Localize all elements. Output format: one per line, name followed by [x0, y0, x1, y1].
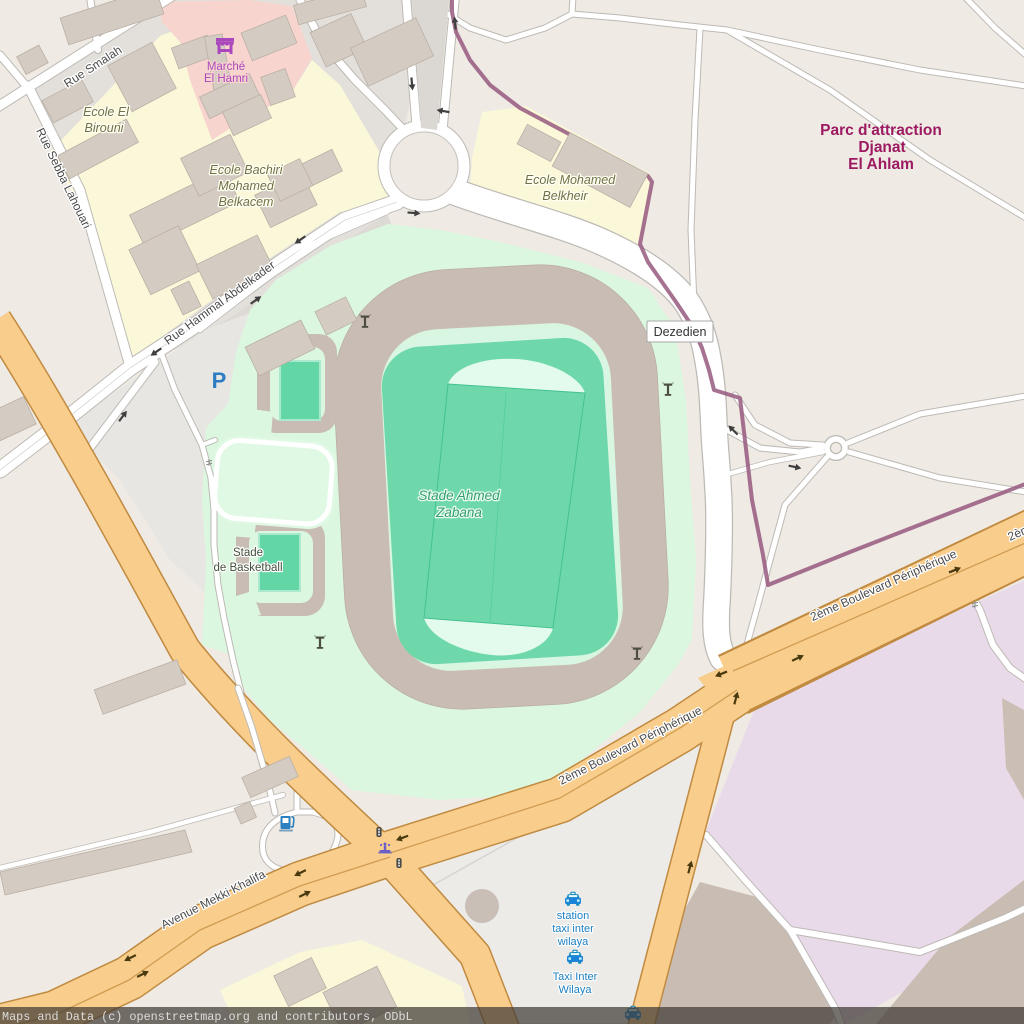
svg-text:Taxi Inter: Taxi Inter — [553, 971, 598, 983]
svg-text:Ecole Bachiri: Ecole Bachiri — [210, 163, 284, 177]
svg-text:wilaya: wilaya — [557, 936, 589, 948]
svg-text:Dezedien: Dezedien — [654, 325, 707, 339]
svg-text:Ecole Mohamed: Ecole Mohamed — [525, 173, 616, 187]
svg-text:Parc d'attraction: Parc d'attraction — [820, 122, 942, 139]
svg-text:El Ahlam: El Ahlam — [848, 156, 914, 173]
svg-text:Belkheir: Belkheir — [542, 189, 588, 203]
svg-text:Stade Ahmed: Stade Ahmed — [418, 488, 500, 503]
svg-text:Mohamed: Mohamed — [218, 179, 275, 193]
svg-text:de Basketball: de Basketball — [213, 562, 282, 574]
svg-text:Zabana: Zabana — [435, 505, 482, 520]
svg-text:station: station — [557, 910, 589, 922]
svg-text:Wilaya: Wilaya — [558, 984, 592, 996]
svg-text:Maps and Data (c) openstreetma: Maps and Data (c) openstreetmap.org and … — [2, 1010, 413, 1024]
svg-text:El Hamri: El Hamri — [204, 73, 248, 85]
svg-text:P: P — [212, 368, 227, 393]
svg-text:Stade: Stade — [233, 547, 263, 559]
svg-text:Ecole El: Ecole El — [83, 105, 130, 119]
svg-text:Djanat: Djanat — [858, 139, 905, 156]
svg-text:Birouni: Birouni — [85, 121, 125, 135]
svg-text:taxi inter: taxi inter — [552, 923, 594, 935]
svg-text:Belkacem: Belkacem — [219, 195, 274, 209]
svg-text:Marché: Marché — [207, 61, 245, 73]
